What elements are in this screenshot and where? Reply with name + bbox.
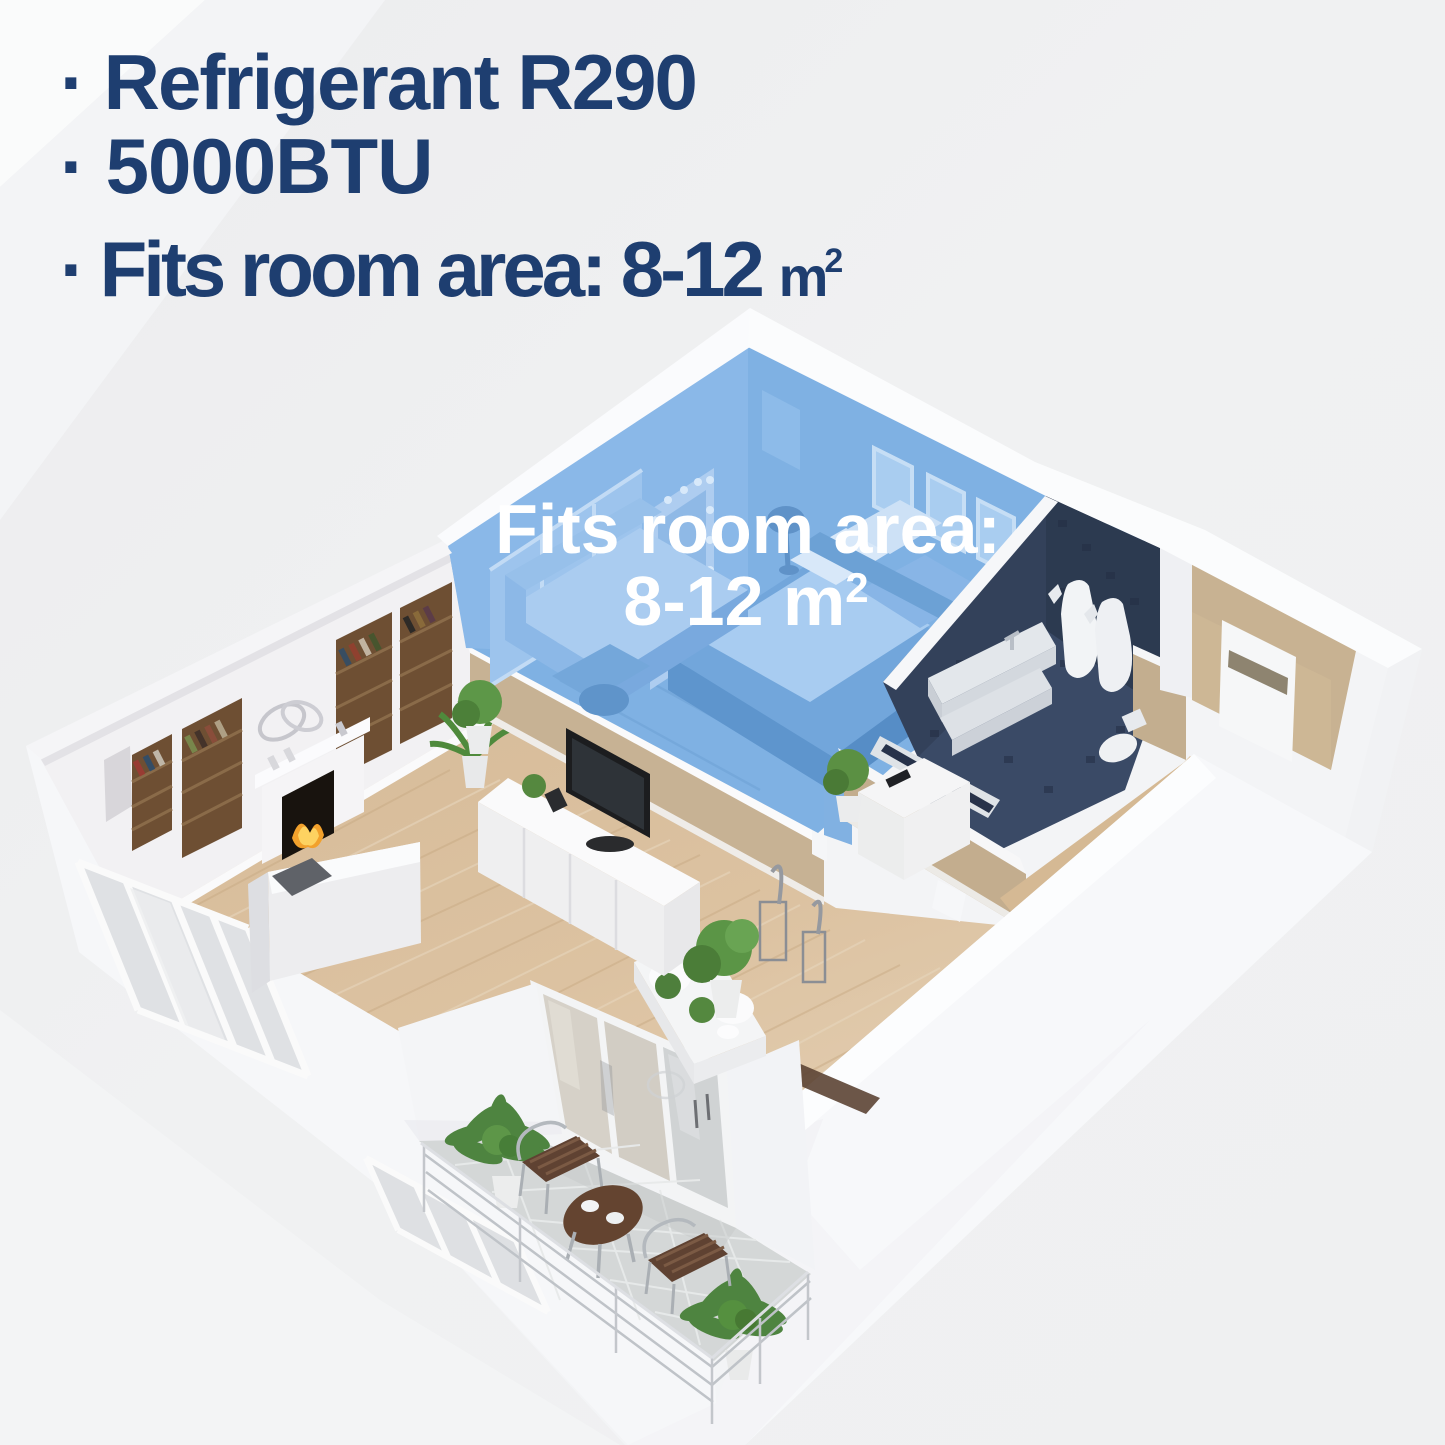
svg-text:· Fits room area: 8-12 m2: · Fits room area: 8-12 m2 [60,225,842,313]
svg-text:8-12 m2: 8-12 m2 [623,562,868,640]
svg-text:· 5000BTU: · 5000BTU [60,122,432,210]
svg-text:· Refrigerant R290: · Refrigerant R290 [60,38,696,126]
svg-text:Fits room area:: Fits room area: [495,490,1001,568]
